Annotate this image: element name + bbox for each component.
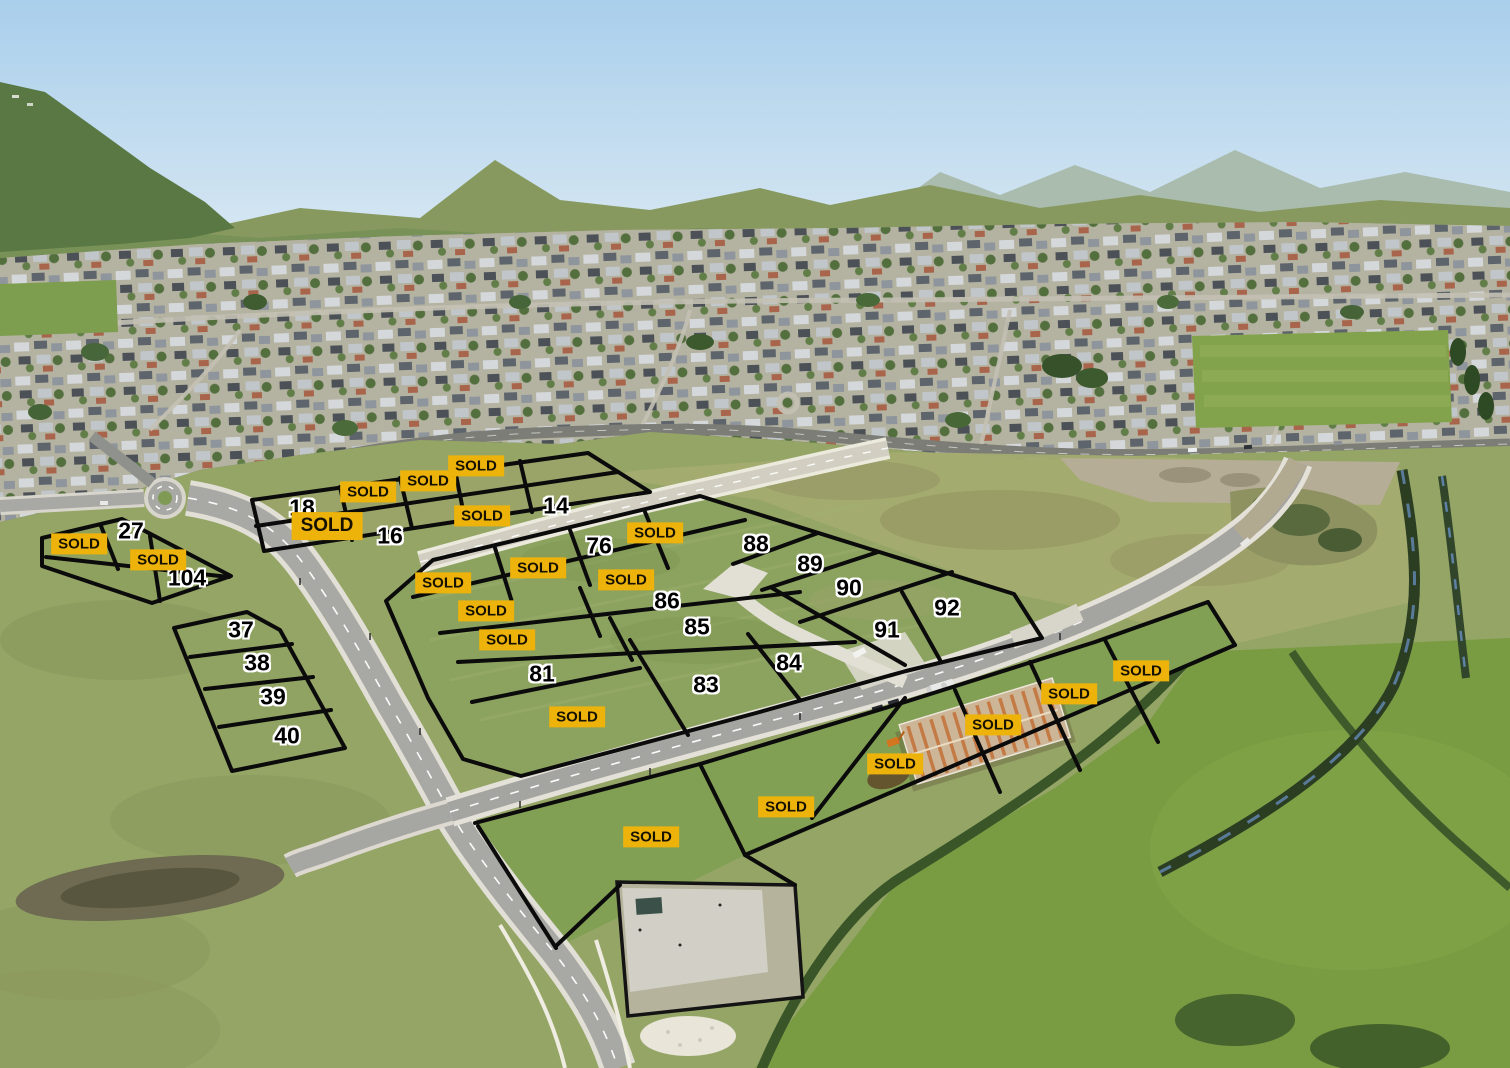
sold-label: SOLD [479,629,535,650]
lot-number-label: 89 [797,553,823,576]
lot-number-label: 92 [934,597,960,620]
sold-label: SOLD [623,826,679,847]
sold-label: SOLD [965,714,1021,735]
lot-number-label: 85 [684,616,710,639]
sold-label: SOLD [458,600,514,621]
sold-label: SOLD [454,505,510,526]
sold-label: SOLD [549,706,605,727]
lot-number-label: 16 [377,525,403,548]
sold-label: SOLD [292,512,363,540]
sold-label: SOLD [448,455,504,476]
lot-number-label: 38 [244,652,270,675]
lot-number-label: 83 [693,674,719,697]
lot-number-label: 39 [260,686,286,709]
sold-label: SOLD [340,481,396,502]
lot-number-label: 14 [543,495,569,518]
sold-label: SOLD [1113,660,1169,681]
sold-label: SOLD [51,533,107,554]
sold-label: SOLD [758,796,814,817]
sold-label: SOLD [598,569,654,590]
lot-number-label: 81 [529,663,555,686]
lot-number-label: 84 [776,652,802,675]
sold-label: SOLD [1041,683,1097,704]
sold-label: SOLD [510,557,566,578]
lot-number-label: 90 [836,577,862,600]
sold-label: SOLD [130,549,186,570]
lot-number-label: 27 [118,520,144,543]
lot-number-label: 91 [874,619,900,642]
lot-number-label: 76 [586,535,612,558]
aerial-subdivision-photo: 2710418161476888990929186858483813738394… [0,0,1510,1068]
sold-label: SOLD [415,572,471,593]
lot-number-label: 86 [654,590,680,613]
lot-number-label: 37 [228,619,254,642]
lot-number-label: 40 [274,725,300,748]
labels-layer: 2710418161476888990929186858483813738394… [0,0,1510,1068]
sold-label: SOLD [627,522,683,543]
sold-label: SOLD [867,753,923,774]
lot-number-label: 88 [743,533,769,556]
